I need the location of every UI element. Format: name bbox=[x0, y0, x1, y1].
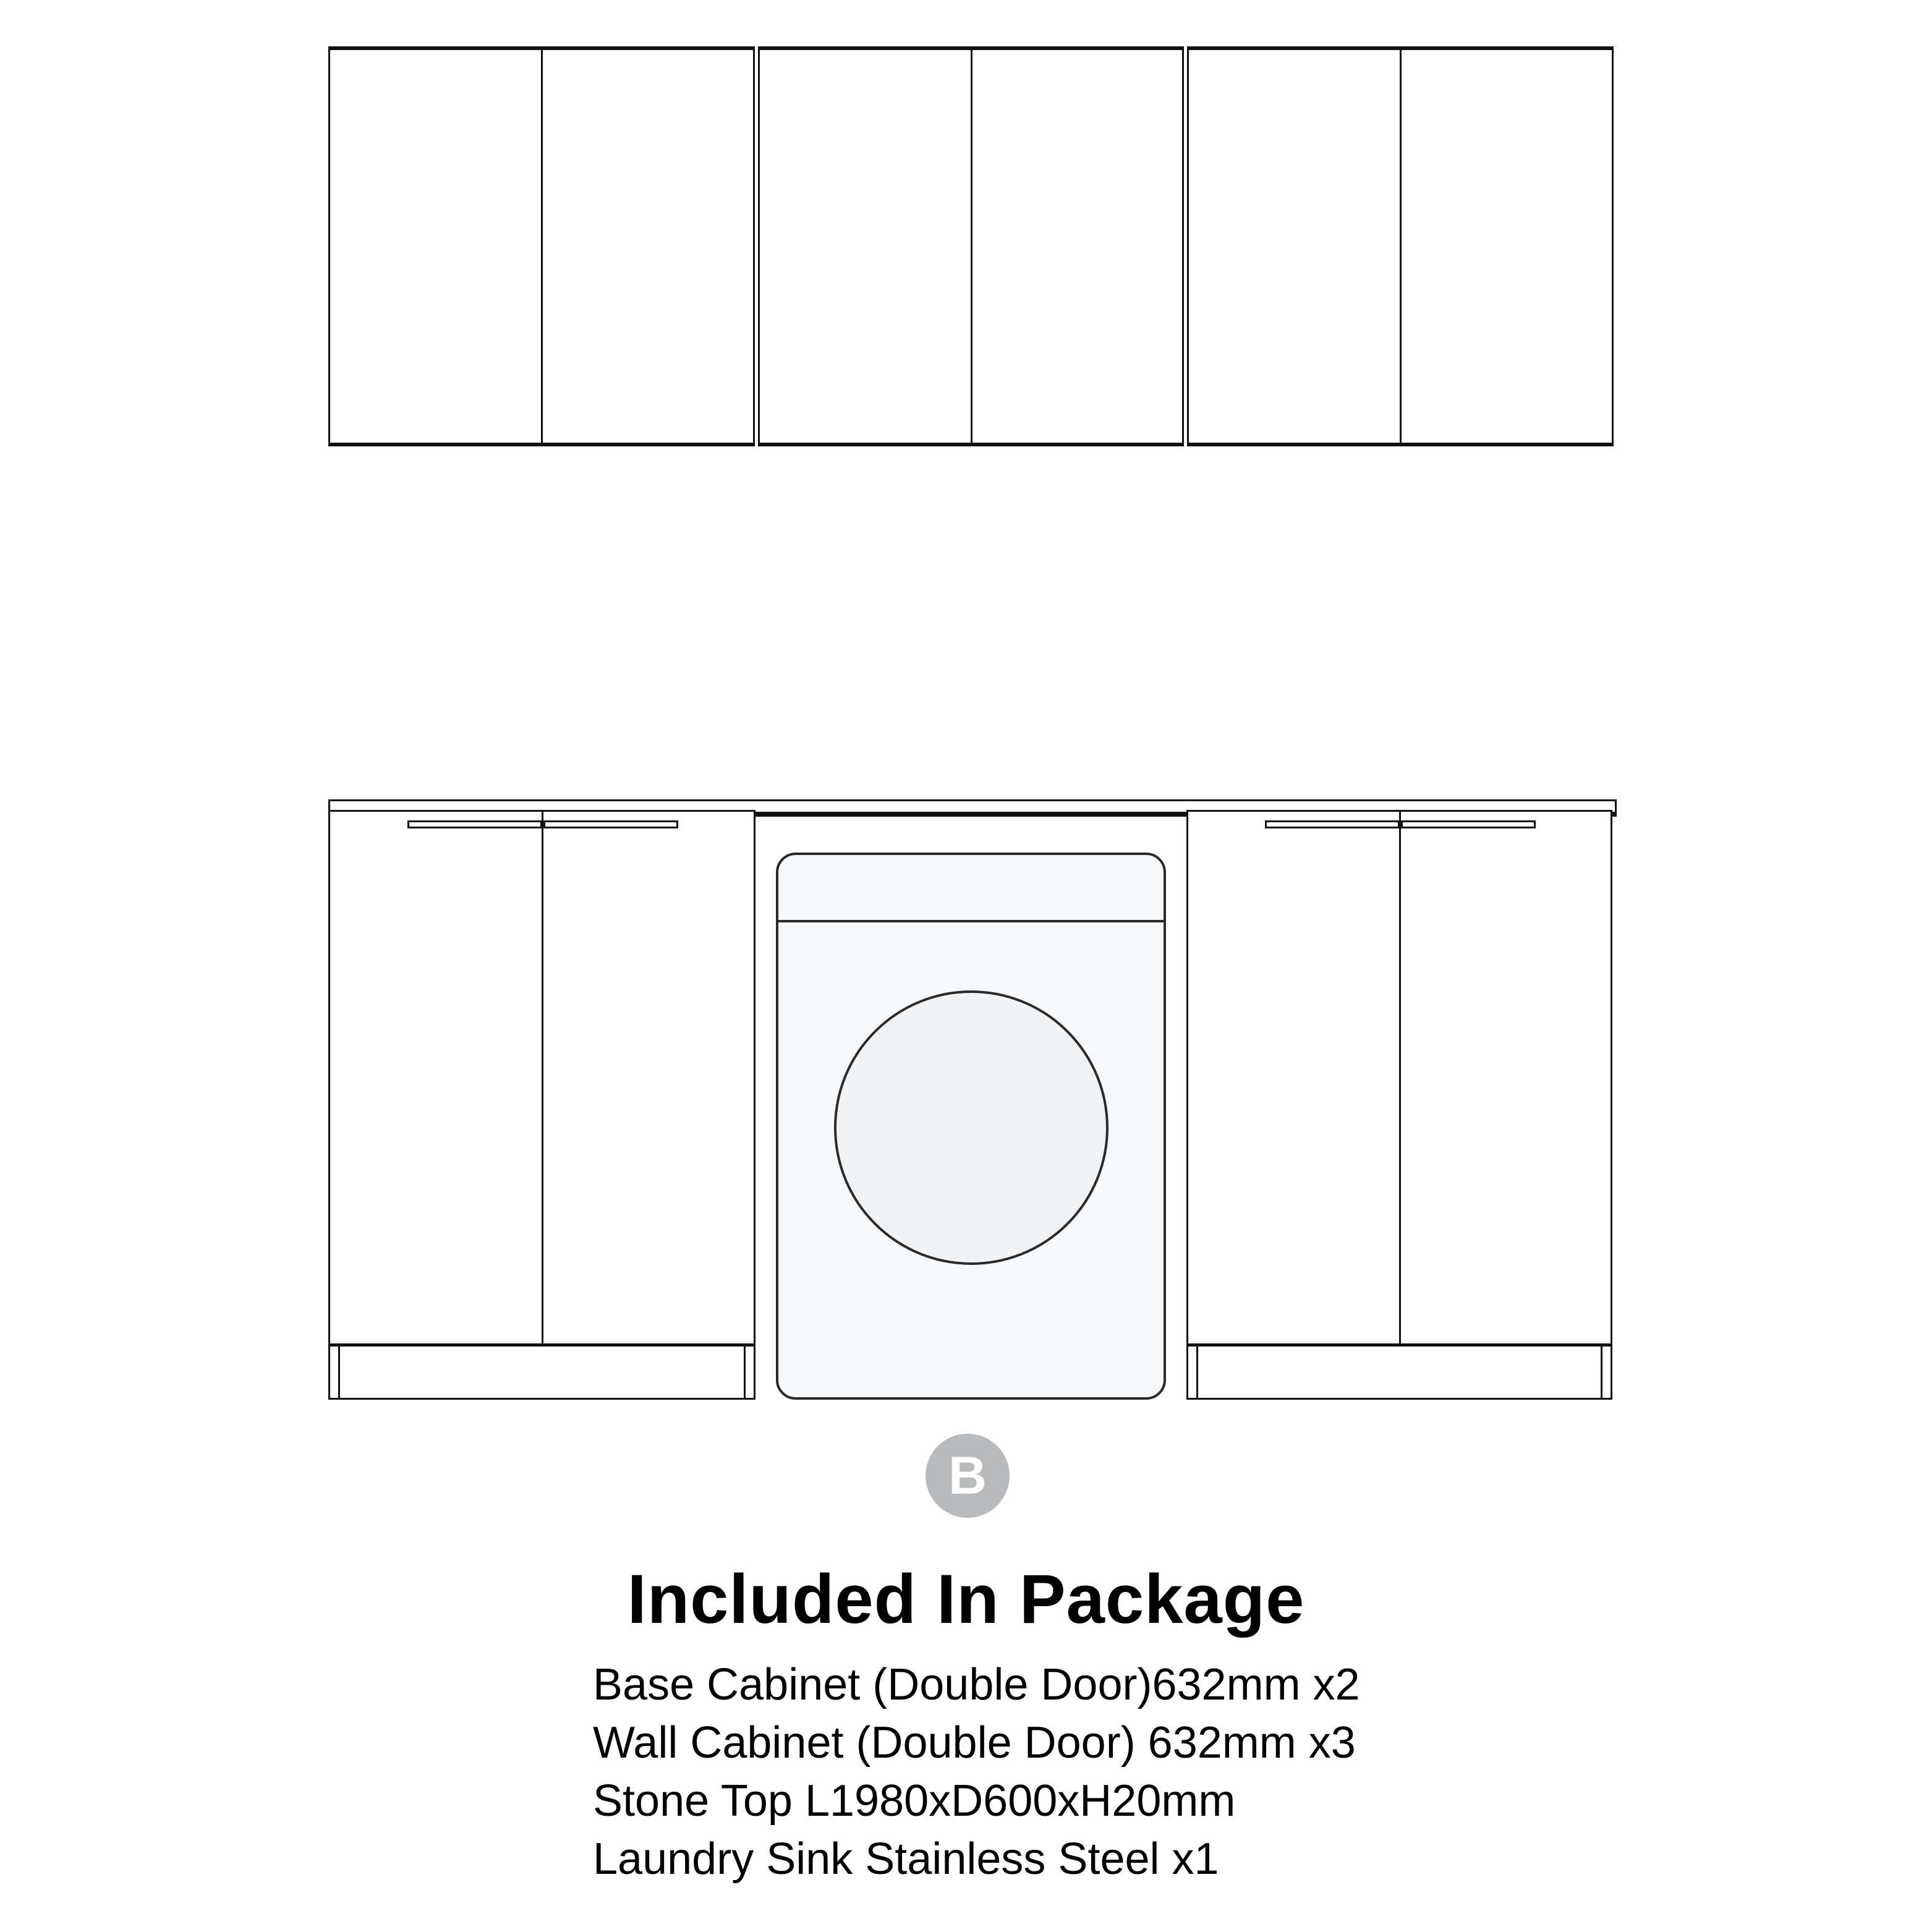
wall-cabinets-row bbox=[328, 46, 1614, 446]
option-b-badge-label: B bbox=[948, 1449, 987, 1502]
base-cabinet-right-handle-left bbox=[1265, 820, 1400, 828]
included-in-package-title: Included In Package bbox=[0, 1559, 1932, 1639]
kickboard-leg-line bbox=[338, 1347, 340, 1398]
washing-machine-door bbox=[834, 990, 1109, 1265]
kickboard-leg-line bbox=[744, 1347, 746, 1398]
kickboard-leg-line bbox=[1601, 1347, 1602, 1398]
package-item: Base Cabinet (Double Door)632mm x2 bbox=[593, 1656, 1520, 1714]
package-items-list: Base Cabinet (Double Door)632mm x2 Wall … bbox=[593, 1656, 1520, 1888]
package-item: Laundry Sink Stainless Steel x1 bbox=[593, 1830, 1520, 1888]
kickboard-leg-line bbox=[1196, 1347, 1198, 1398]
base-cabinet-right-kickboard bbox=[1186, 1345, 1612, 1400]
wall-cabinet-1-door-divider bbox=[541, 50, 543, 443]
base-cabinet-left-handle-left bbox=[407, 820, 542, 828]
package-item: Stone Top L1980xD600xH20mm bbox=[593, 1772, 1520, 1830]
base-cabinet-right-door-divider bbox=[1399, 812, 1401, 1343]
wall-cabinet-2 bbox=[758, 46, 1185, 446]
base-cabinet-right bbox=[1186, 810, 1612, 1345]
option-b-badge: B bbox=[926, 1434, 1010, 1518]
wall-cabinet-1 bbox=[328, 46, 755, 446]
base-cabinet-left-kickboard bbox=[328, 1345, 755, 1400]
base-cabinet-left bbox=[328, 810, 755, 1345]
base-cabinet-left-handle-right bbox=[543, 820, 678, 828]
wall-cabinet-2-door-divider bbox=[971, 50, 972, 443]
base-cabinet-right-handle-right bbox=[1401, 820, 1536, 828]
wall-cabinet-3-door-divider bbox=[1400, 50, 1402, 443]
wall-cabinet-3 bbox=[1187, 46, 1614, 446]
washing-machine bbox=[776, 853, 1166, 1400]
package-item: Wall Cabinet (Double Door) 632mm x3 bbox=[593, 1714, 1520, 1772]
washing-machine-panel-line bbox=[776, 920, 1166, 922]
base-cabinet-left-door-divider bbox=[542, 812, 543, 1343]
